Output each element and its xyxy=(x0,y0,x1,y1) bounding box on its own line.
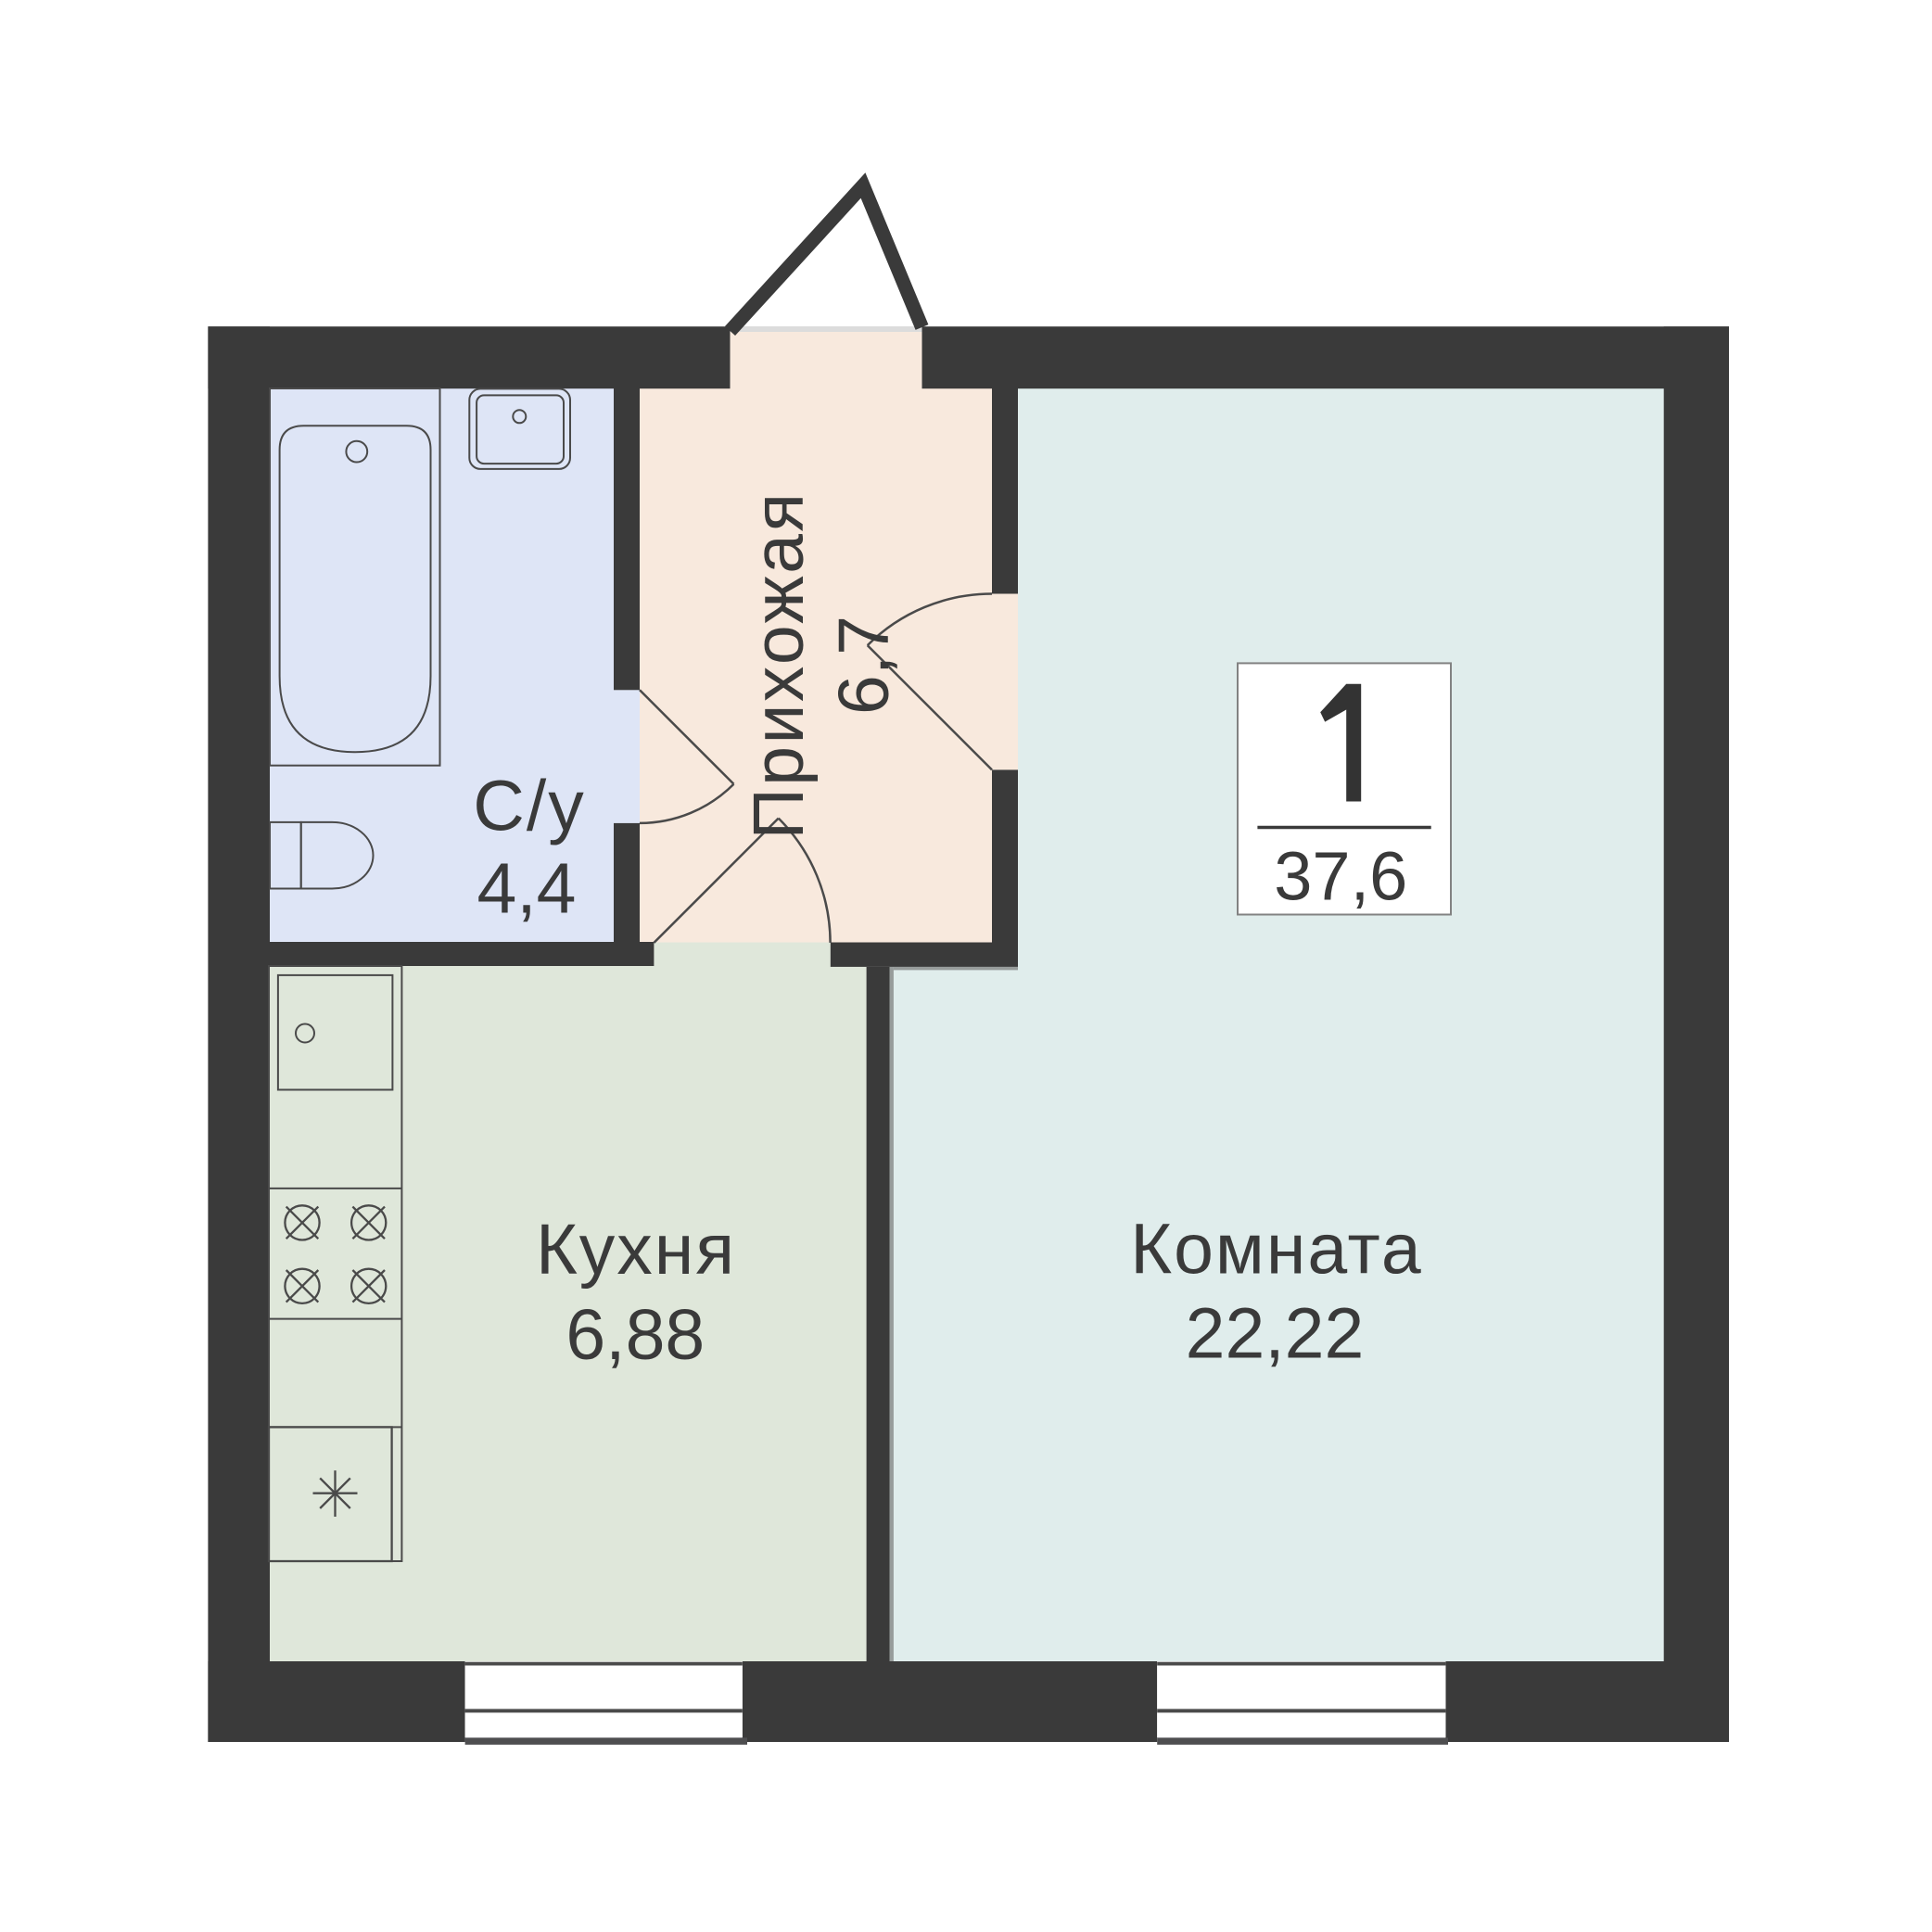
svg-text:6,88: 6,88 xyxy=(566,1295,705,1375)
svg-text:Прихожая: Прихожая xyxy=(739,490,819,839)
svg-text:Комната: Комната xyxy=(1130,1209,1423,1289)
svg-text:6,7: 6,7 xyxy=(824,616,904,715)
svg-text:4,4: 4,4 xyxy=(477,848,576,928)
svg-text:Кухня: Кухня xyxy=(536,1210,736,1290)
svg-text:37,6: 37,6 xyxy=(1274,838,1407,915)
svg-text:С/у: С/у xyxy=(473,767,586,846)
svg-text:22,22: 22,22 xyxy=(1186,1294,1365,1374)
